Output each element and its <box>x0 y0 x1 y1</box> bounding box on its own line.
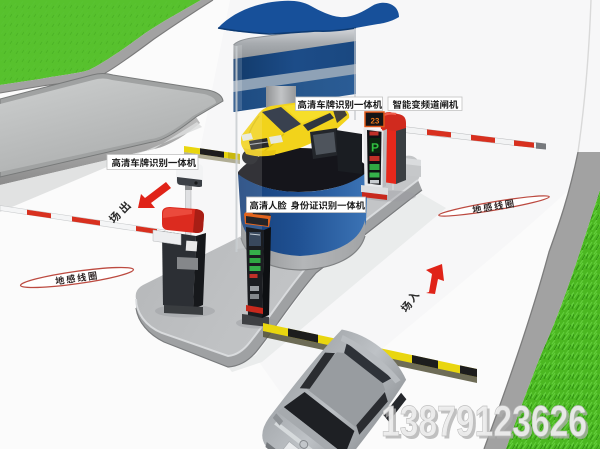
svg-text:13879123626: 13879123626 <box>381 397 587 446</box>
